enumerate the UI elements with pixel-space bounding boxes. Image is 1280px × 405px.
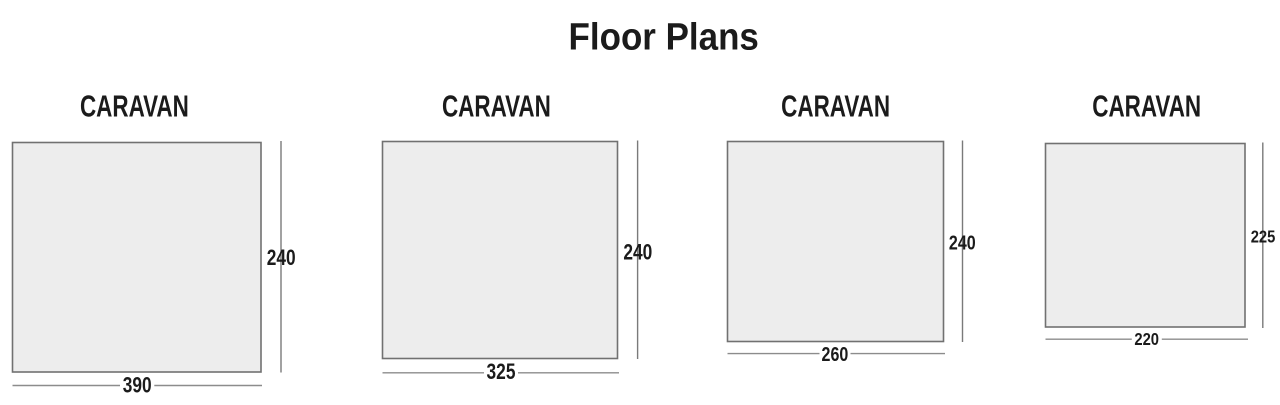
svg-text:260: 260 <box>822 342 849 365</box>
svg-text:CARAVAN: CARAVAN <box>781 89 890 123</box>
svg-text:CARAVAN: CARAVAN <box>1092 89 1201 123</box>
svg-text:240: 240 <box>949 230 976 253</box>
svg-text:CARAVAN: CARAVAN <box>442 89 551 123</box>
svg-text:Floor Plans: Floor Plans <box>569 15 759 58</box>
svg-text:240: 240 <box>623 240 652 265</box>
svg-text:240: 240 <box>267 246 296 271</box>
svg-text:390: 390 <box>123 374 152 399</box>
svg-text:225: 225 <box>1251 227 1276 246</box>
svg-text:325: 325 <box>487 360 516 385</box>
svg-text:220: 220 <box>1134 330 1159 349</box>
svg-text:CARAVAN: CARAVAN <box>80 89 189 123</box>
